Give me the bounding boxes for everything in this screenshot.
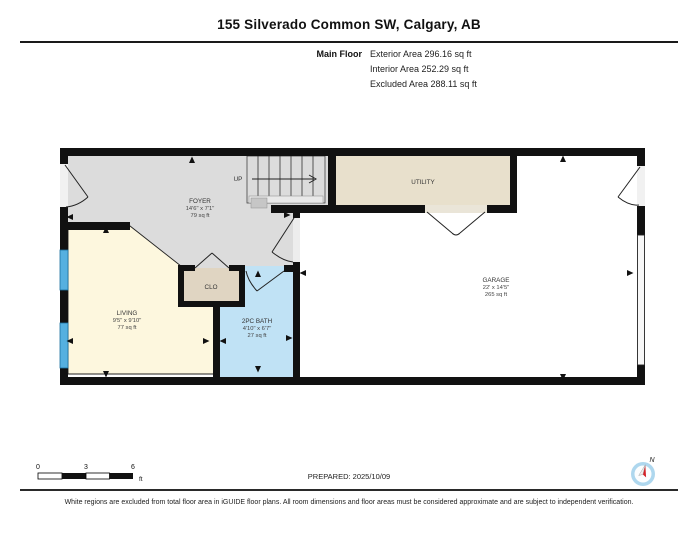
- utility-door-opening: [425, 205, 487, 213]
- svg-text:LIVING: LIVING: [117, 310, 138, 317]
- svg-text:9'5" x 9'10": 9'5" x 9'10": [113, 318, 142, 324]
- svg-text:GARAGE: GARAGE: [483, 277, 510, 284]
- svg-text:27 sq ft: 27 sq ft: [247, 333, 266, 339]
- disclaimer-text: White regions are excluded from total fl…: [0, 499, 698, 506]
- window-living-lower: [60, 323, 68, 368]
- svg-text:77 sq ft: 77 sq ft: [117, 325, 136, 331]
- svg-text:79 sq ft: 79 sq ft: [190, 213, 209, 219]
- svg-text:FOYER: FOYER: [189, 198, 211, 205]
- prepared-date: PREPARED: 2025/10/09: [0, 472, 698, 481]
- front-door-opening: [60, 164, 68, 207]
- closet-label: CLO: [205, 284, 218, 291]
- side-door-opening: [637, 166, 645, 206]
- garage-overhead-door: [638, 235, 645, 365]
- stairs-up-label: UP: [234, 176, 243, 183]
- floorplan-page: 155 Silverado Common SW, Calgary, AB Mai…: [0, 0, 698, 540]
- floor-plan-drawing: UP FOYER 14'6" x 7'1" 79 sq ft UTILITY C…: [0, 0, 698, 540]
- svg-text:265 sq ft: 265 sq ft: [485, 292, 508, 298]
- scale-tick-6: 6: [131, 464, 135, 471]
- scale-tick-0: 0: [36, 464, 40, 471]
- footer-divider: [20, 489, 678, 491]
- svg-text:2PC BATH: 2PC BATH: [242, 318, 273, 325]
- svg-text:14'6" x 7'1": 14'6" x 7'1": [186, 206, 215, 212]
- svg-text:22' x 14'5": 22' x 14'5": [483, 285, 510, 291]
- garage-label: GARAGE 22' x 14'5" 265 sq ft: [483, 277, 510, 298]
- staircase: [247, 156, 325, 208]
- compass-north-label: N: [649, 457, 655, 464]
- utility-label: UTILITY: [411, 179, 435, 186]
- window-living-upper: [60, 250, 68, 290]
- svg-text:4'10" x 6'7": 4'10" x 6'7": [243, 326, 272, 332]
- scale-tick-3: 3: [84, 464, 88, 471]
- garage-man-door-opening: [293, 218, 300, 262]
